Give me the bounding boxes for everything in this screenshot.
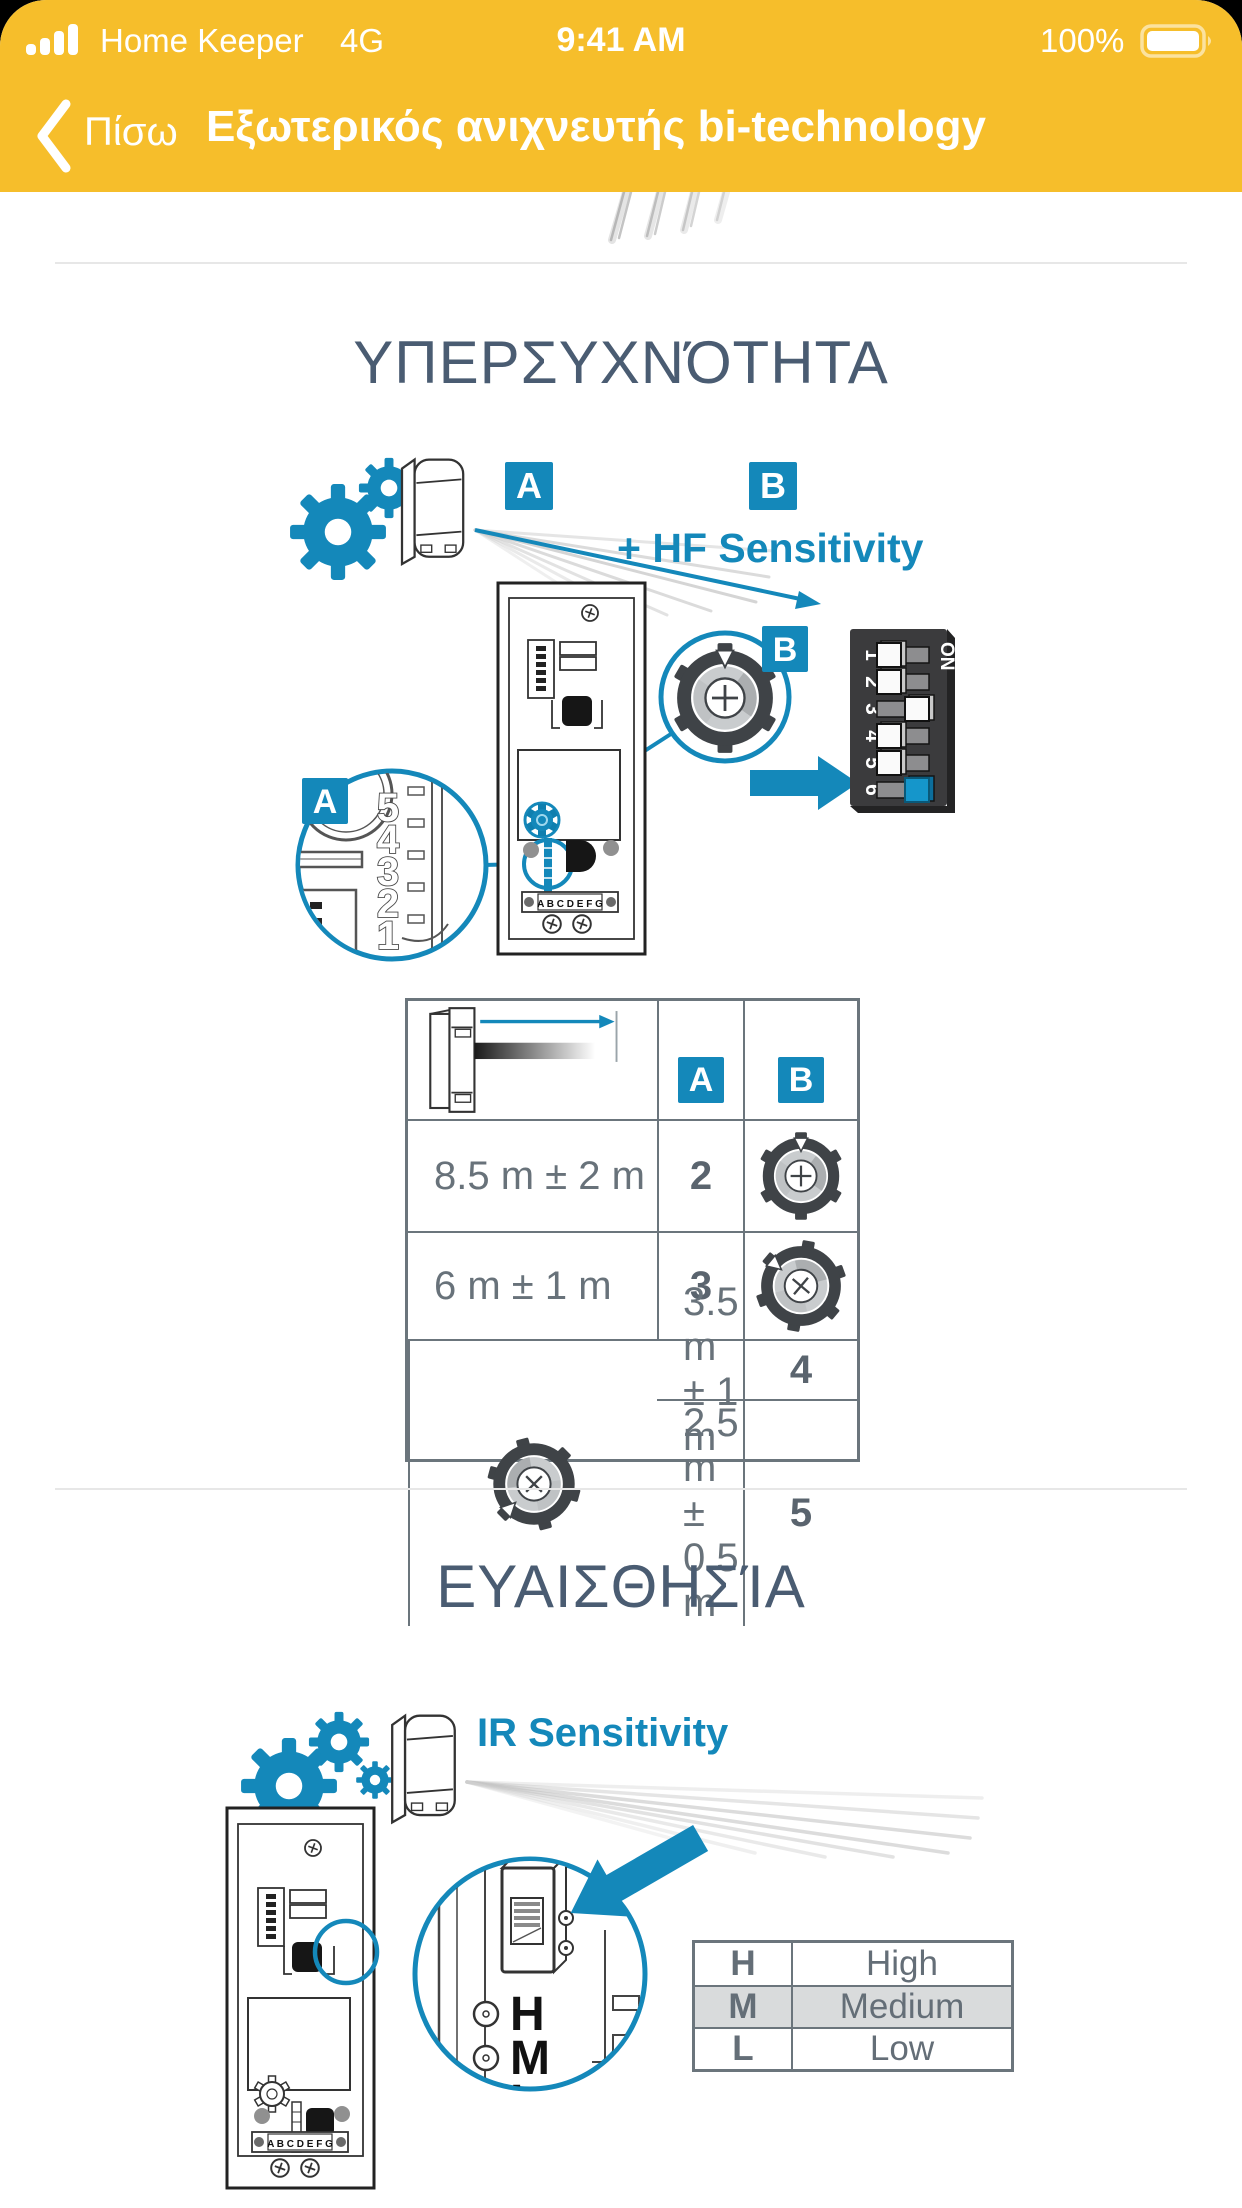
back-button[interactable]: Πίσω (28, 92, 228, 180)
svg-text:B: B (773, 631, 798, 669)
jumper-position-screws (474, 2002, 498, 2114)
hf-trimmer-on-board (525, 803, 559, 837)
col-header-a: A (657, 1001, 743, 1119)
section-title-ir: ΕΥΑΙΣΘΗΣΊΑ (0, 1552, 1242, 1621)
terminal-labels: A B C D E F G (537, 899, 603, 910)
jumper-labels: H M L (510, 1988, 550, 2129)
label-a-text: A (516, 465, 542, 506)
back-chevron-icon (34, 98, 72, 174)
trimmer-icon (485, 1435, 583, 1533)
header: Home Keeper 4G 9:41 AM 100% Πίσω Εξωτερι… (0, 0, 1242, 192)
svg-text:A: A (313, 783, 338, 821)
detail-circle-b: B (661, 626, 808, 761)
trimmer-cell (743, 1119, 857, 1231)
level-value-cell: Low (791, 2027, 1011, 2069)
section-title-hf: ΥΠΕΡΣΥΧΝΌΤΗΤΑ (0, 328, 1242, 397)
battery-percent: 100% (1040, 22, 1124, 60)
range-cell: 6 m ± 1 m (408, 1231, 657, 1339)
svg-text:1: 1 (377, 914, 399, 958)
hf-caption: + HF Sensitivity (617, 525, 924, 571)
pcb-front: A B C D E F G (227, 1808, 377, 2188)
range-figure (413, 1005, 653, 1115)
trimmer-cell (743, 1231, 857, 1339)
range-cell: 3.5 m ± 1 m (657, 1339, 743, 1399)
hf-board-diagram: A B C D E F G (150, 580, 1100, 980)
label-b-text: B (760, 465, 786, 506)
dip-switch-6-highlighted-knob (905, 778, 929, 802)
range-figure-cell (408, 1001, 657, 1119)
col-header-b: B (743, 1001, 857, 1119)
level-value-cell-selected: Medium (791, 1985, 1011, 2027)
battery-icon (1140, 24, 1218, 62)
jumper-label-l: L (510, 2076, 539, 2129)
hf-range-table: A B 8.5 m ± 2 m 2 6 m ± 1 m 3 3.5 m ± 1 … (405, 998, 860, 1462)
divider (55, 262, 1187, 264)
scale-numbers: 5 4 3 2 1 (377, 786, 400, 958)
detector-icon (402, 460, 463, 564)
back-button-label: Πίσω (84, 110, 178, 155)
dip-on-label: ON (936, 642, 957, 671)
trimmer-icon (755, 1130, 847, 1222)
range-cell: 8.5 m ± 2 m (408, 1119, 657, 1231)
level-key-cell-selected: M (695, 1985, 791, 2027)
pir-sensor (562, 696, 592, 726)
a-value-cell: 2 (657, 1119, 743, 1231)
ir-caption: IR Sensitivity (477, 1711, 729, 1755)
arrow-right-icon (750, 756, 858, 810)
pcb-front: A B C D E F G (498, 583, 645, 954)
ir-sensitivity-table: H High M Medium L Low (692, 1940, 1014, 2072)
rays-remnant-graphic (598, 192, 773, 244)
divider (55, 1488, 1187, 1490)
level-key-cell: L (695, 2027, 791, 2069)
terminal-labels: A B C D E F G (267, 2139, 333, 2150)
dip-switch: ON 1 2 3 4 5 6 (850, 629, 957, 813)
level-value-cell: High (791, 1943, 1011, 1985)
a-value-cell: 4 (743, 1339, 857, 1399)
detail-circle-a: 5 4 3 2 1 A (298, 748, 486, 960)
page-title: Εξωτερικός ανιχνευτής bi-technology (206, 102, 986, 152)
jumper-zoom-circle: H M L (415, 1809, 717, 2129)
app-screen: Home Keeper 4G 9:41 AM 100% Πίσω Εξωτερι… (0, 0, 1242, 2208)
trimmer-icon (753, 1238, 849, 1334)
jumper-slider (502, 1856, 566, 1972)
level-key-cell: H (695, 1943, 791, 1985)
